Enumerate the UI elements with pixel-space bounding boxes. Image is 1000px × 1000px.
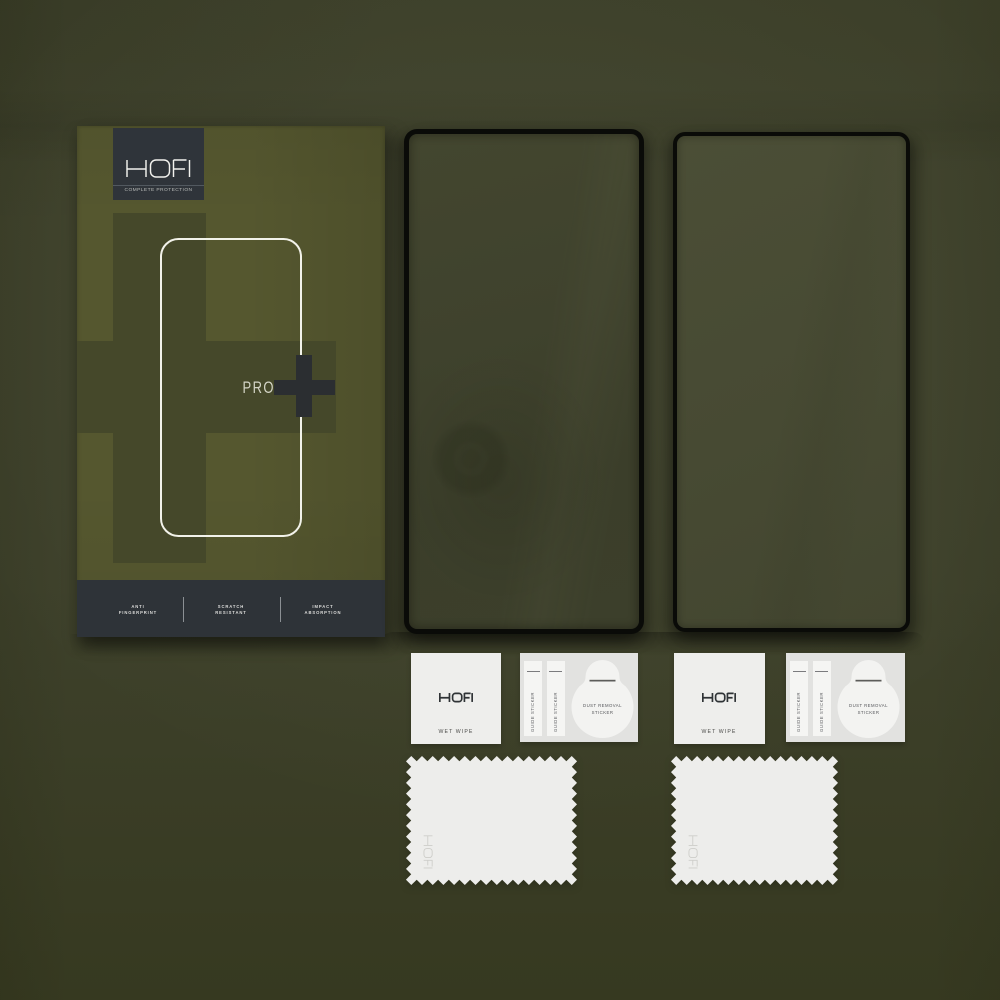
svg-text:DUST REMOVAL: DUST REMOVAL <box>849 703 888 708</box>
svg-text:STICKER: STICKER <box>592 710 614 715</box>
svg-text:STICKER: STICKER <box>858 710 880 715</box>
svg-text:DUST REMOVAL: DUST REMOVAL <box>583 703 622 708</box>
